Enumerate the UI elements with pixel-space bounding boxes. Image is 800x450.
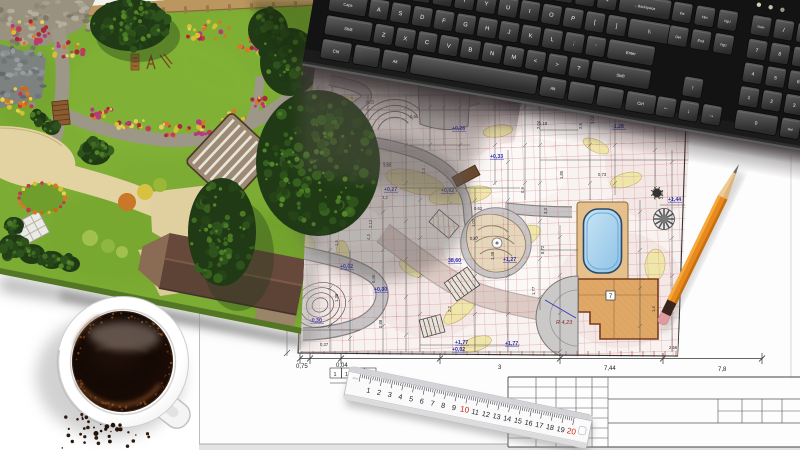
svg-text:0,9: 0,9: [520, 187, 525, 193]
svg-text:R 4,23: R 4,23: [556, 320, 573, 326]
svg-text:3,3: 3,3: [543, 208, 548, 214]
svg-text:3,61: 3,61: [659, 190, 664, 199]
svg-text:1,02: 1,02: [471, 218, 476, 227]
svg-text:2,56: 2,56: [669, 345, 678, 350]
svg-text:1,49: 1,49: [490, 251, 495, 260]
svg-text:1,4: 1,4: [651, 306, 656, 312]
svg-text:1: 1: [334, 372, 337, 378]
svg-text:0,37: 0,37: [320, 342, 329, 347]
svg-text:→: →: [708, 113, 715, 120]
svg-text:0,97: 0,97: [470, 236, 479, 241]
svg-text:0,73: 0,73: [598, 172, 607, 177]
svg-text:0,88: 0,88: [378, 319, 383, 328]
svg-text:1,85: 1,85: [559, 170, 564, 179]
svg-text:8,72: 8,72: [540, 245, 545, 254]
svg-text:←: ←: [663, 105, 670, 112]
svg-text:1,77: 1,77: [531, 286, 536, 295]
svg-text:0,75: 0,75: [296, 364, 308, 370]
svg-text:1,38: 1,38: [334, 293, 339, 302]
svg-text:0,62: 0,62: [474, 206, 483, 211]
svg-text:Ins: Ins: [679, 11, 685, 16]
svg-text:7,8: 7,8: [718, 367, 727, 373]
svg-text:7,44: 7,44: [604, 366, 616, 372]
svg-text:2,2: 2,2: [447, 306, 452, 312]
